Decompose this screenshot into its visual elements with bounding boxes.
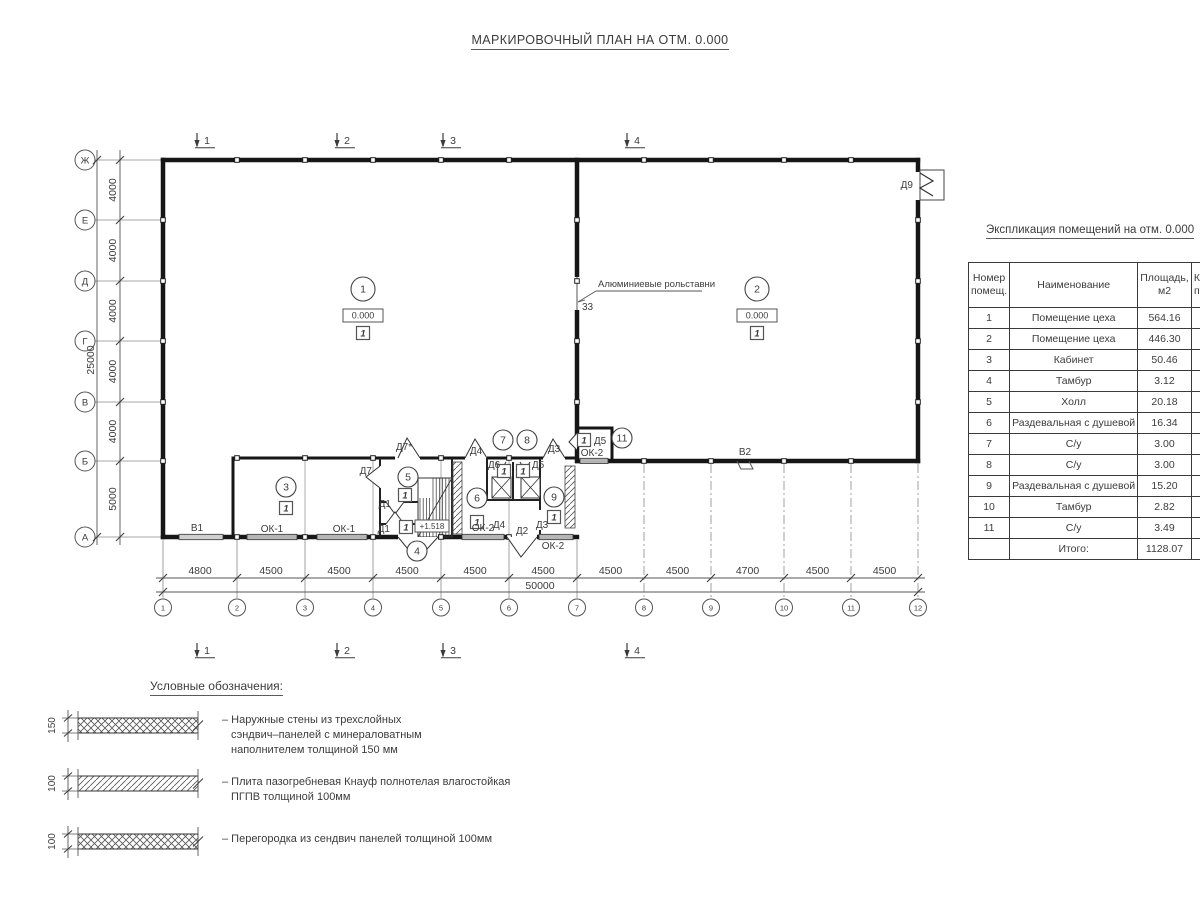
- note-leader: [578, 291, 596, 302]
- dim-text: 4800: [188, 565, 212, 577]
- axis-grid: 123456789101112ЖЕДГВБА: [75, 150, 927, 616]
- cell-num: 3: [969, 350, 1010, 371]
- stair-level-mark: +1.518: [415, 520, 449, 532]
- column-mark: [575, 400, 580, 405]
- room-marker: 11: [612, 428, 632, 448]
- category-text: 1: [402, 490, 407, 501]
- cell-name: Помещение цеха: [1010, 308, 1138, 329]
- section-mark: 1: [194, 643, 215, 658]
- section-mark: 1: [194, 133, 215, 148]
- cell-cat: [1191, 518, 1200, 539]
- cell-area: 16.34: [1138, 413, 1192, 434]
- dim-text: 4700: [736, 565, 760, 577]
- section-arrow-icon: [440, 650, 445, 658]
- legend-item-text: ПГПВ толщиной 100мм: [231, 790, 510, 805]
- cell-area: 3.00: [1138, 455, 1192, 476]
- axis-bubble: 10: [776, 599, 793, 616]
- column-mark: [575, 339, 580, 344]
- window-fill: [462, 534, 504, 539]
- room-marker: 4: [407, 541, 427, 561]
- dim-text: 4500: [873, 565, 897, 577]
- hatched-partition: [565, 466, 575, 528]
- axis-bubble-label: 1: [161, 604, 165, 613]
- category-text: 1: [501, 466, 506, 477]
- door-label: Д1: [378, 524, 391, 535]
- room-schedule: Номерпомещ. Наименование Площадь,м2 Капо…: [968, 262, 1200, 560]
- column-mark: [575, 279, 580, 284]
- legend-bar: [78, 776, 198, 791]
- axis-bubble: 5: [433, 599, 450, 616]
- total-empty-cell: [969, 539, 1010, 560]
- cell-name: Раздевальная с душевой: [1010, 413, 1138, 434]
- legend-item-graphic: 100: [47, 826, 203, 858]
- legend-item-text: – Наружные стены из трехслойных: [222, 713, 422, 728]
- cell-area: 446.30: [1138, 329, 1192, 350]
- door-swing: [569, 433, 577, 450]
- level-text: 0.000: [352, 311, 375, 321]
- room-marker: 7: [493, 430, 513, 450]
- note-number: 33: [582, 302, 594, 313]
- dim-text: 4500: [666, 565, 690, 577]
- section-mark-number: 3: [450, 135, 456, 147]
- level-mark: 0.000: [737, 309, 777, 322]
- room-marker: 5: [398, 467, 418, 487]
- cell-num: 9: [969, 476, 1010, 497]
- section-mark-number: 2: [344, 645, 350, 657]
- total-label: Итого:: [1010, 539, 1138, 560]
- table-row: 3Кабинет50.46: [969, 350, 1200, 371]
- table-row: 2Помещение цеха446.30: [969, 329, 1200, 350]
- legend-item-text: – Перегородка из сендвич панелей толщино…: [222, 832, 492, 847]
- axis-bubble-label: 7: [575, 604, 579, 613]
- cell-cat: [1191, 308, 1200, 329]
- window-label: ОК-2: [542, 541, 565, 552]
- column-mark: [161, 339, 166, 344]
- shower-box: [492, 477, 511, 498]
- section-arrow-icon: [334, 140, 339, 148]
- note-text: Алюминиевые рольставни: [598, 279, 715, 290]
- column-mark: [161, 459, 166, 464]
- room-marker: 1: [351, 277, 375, 301]
- window-label: В1: [191, 523, 204, 534]
- room-marker: 8: [517, 430, 537, 450]
- cell-cat: [1191, 476, 1200, 497]
- cell-area: 15.20: [1138, 476, 1192, 497]
- cell-cat: [1191, 434, 1200, 455]
- window-fill: [580, 458, 608, 463]
- legend-item-graphic: 150: [47, 710, 203, 742]
- section-mark: 2: [334, 133, 355, 148]
- column-mark: [235, 158, 240, 163]
- table-row: 8С/у3.00: [969, 455, 1200, 476]
- legend-item-text: сэндвич–панелей с минераловатным: [231, 728, 422, 743]
- window-fill: [247, 534, 297, 539]
- legend-graphics: 150100100: [47, 710, 203, 858]
- legend-dim-text: 100: [47, 833, 58, 850]
- axis-bubble: Ж: [75, 150, 95, 170]
- column-mark: [709, 158, 714, 163]
- table-row: 10Тамбур2.82: [969, 497, 1200, 518]
- cell-num: 4: [969, 371, 1010, 392]
- window-label: ОК-2: [472, 523, 495, 534]
- category-text: 1: [403, 522, 408, 533]
- table-row: 6Раздевальная с душевой16.34: [969, 413, 1200, 434]
- category-mark: 1: [280, 502, 293, 515]
- category-mark: 1: [548, 511, 561, 524]
- column-mark: [782, 158, 787, 163]
- door-swing: [507, 537, 537, 557]
- cell-num: 10: [969, 497, 1010, 518]
- door-label: Д5: [532, 460, 545, 471]
- room-marker: 6: [467, 488, 487, 508]
- column-mark: [642, 158, 647, 163]
- column-mark: [235, 456, 240, 461]
- room-number: 7: [500, 435, 506, 447]
- column-mark: [161, 218, 166, 223]
- axis-bubble-label: Б: [82, 457, 88, 468]
- column-mark: [161, 400, 166, 405]
- section-arrow-icon: [624, 140, 629, 148]
- column-mark: [916, 339, 921, 344]
- cell-area: 3.49: [1138, 518, 1192, 539]
- legend-bar: [78, 718, 198, 733]
- legend-dim-text: 150: [47, 717, 58, 734]
- legend-dim-text: 100: [47, 775, 58, 792]
- room-number: 8: [524, 435, 530, 447]
- col-header-number: Номерпомещ.: [969, 263, 1010, 308]
- room-schedule-table: Номерпомещ. Наименование Площадь,м2 Капо…: [968, 262, 1200, 560]
- dim-text: 4500: [259, 565, 283, 577]
- section-arrow-icon: [194, 650, 199, 658]
- axis-bubble-label: 4: [371, 604, 375, 613]
- axis-bubble: 1: [155, 599, 172, 616]
- dim-text: 4500: [531, 565, 555, 577]
- section-mark: 4: [624, 643, 645, 658]
- axis-bubble-label: Д: [82, 277, 89, 288]
- category-text: 1: [754, 328, 759, 339]
- cell-name: С/у: [1010, 455, 1138, 476]
- axis-bubble: Б: [75, 451, 95, 471]
- level-mark: 0.000: [343, 309, 383, 322]
- total-value: 1128.07: [1138, 539, 1192, 560]
- axis-bubble: 2: [229, 599, 246, 616]
- axis-bubble-label: Ж: [81, 156, 90, 167]
- column-mark: [849, 459, 854, 464]
- column-mark: [916, 218, 921, 223]
- room-marker: 3: [276, 477, 296, 497]
- column-mark: [439, 456, 444, 461]
- door-label: Д9: [901, 180, 914, 191]
- door-label: Д6: [488, 460, 501, 471]
- column-mark: [439, 535, 444, 540]
- column-mark: [575, 218, 580, 223]
- walls: [161, 158, 921, 540]
- cell-num: 6: [969, 413, 1010, 434]
- cell-num: 1: [969, 308, 1010, 329]
- cell-area: 50.46: [1138, 350, 1192, 371]
- legend-item-text: наполнителем толщиной 150 мм: [231, 743, 422, 758]
- section-arrow-icon: [194, 140, 199, 148]
- section-mark-number: 1: [204, 645, 210, 657]
- axis-bubble: А: [75, 527, 95, 547]
- column-mark: [235, 535, 240, 540]
- axis-bubble: 12: [910, 599, 927, 616]
- axis-bubble: Е: [75, 210, 95, 230]
- col-header-category: Капо: [1191, 263, 1200, 308]
- stair-level-text: +1.518: [420, 522, 445, 531]
- category-text: 1: [551, 512, 556, 523]
- column-mark: [916, 400, 921, 405]
- category-text: 1: [360, 328, 365, 339]
- legend-item: – Плита пазогребневая Кнауф полнотелая в…: [222, 775, 510, 805]
- cell-cat: [1191, 392, 1200, 413]
- cell-cat: [1191, 455, 1200, 476]
- axis-bubble-label: 2: [235, 604, 239, 613]
- section-mark: 2: [334, 643, 355, 658]
- section-mark-number: 2: [344, 135, 350, 147]
- table-row: 7С/у3.00: [969, 434, 1200, 455]
- column-mark: [371, 456, 376, 461]
- column-mark: [303, 535, 308, 540]
- room-marker: 9: [544, 487, 564, 507]
- total-empty-cell: [1191, 539, 1200, 560]
- column-mark: [161, 279, 166, 284]
- column-mark: [849, 158, 854, 163]
- axis-bubble-label: 3: [303, 604, 307, 613]
- axis-bubble: 6: [501, 599, 518, 616]
- axis-bubble-label: 6: [507, 604, 511, 613]
- dim-text: 5000: [107, 487, 119, 511]
- cell-name: Тамбур: [1010, 371, 1138, 392]
- room-number: 4: [414, 546, 420, 558]
- column-mark: [642, 459, 647, 464]
- cell-num: 8: [969, 455, 1010, 476]
- section-mark-number: 1: [204, 135, 210, 147]
- section-arrow-icon: [440, 140, 445, 148]
- cell-name: Помещение цеха: [1010, 329, 1138, 350]
- cell-name: С/у: [1010, 434, 1138, 455]
- column-mark: [371, 535, 376, 540]
- legend-item: – Наружные стены из трехслойныхсэндвич–п…: [222, 713, 422, 758]
- room-number: 5: [405, 472, 411, 484]
- cell-cat: [1191, 413, 1200, 434]
- cell-num: 7: [969, 434, 1010, 455]
- cell-name: Тамбур: [1010, 497, 1138, 518]
- dim-text: 4500: [327, 565, 351, 577]
- dim-text: 4000: [107, 360, 119, 384]
- cell-num: 11: [969, 518, 1010, 539]
- axis-bubble: 8: [636, 599, 653, 616]
- column-mark: [709, 459, 714, 464]
- category-mark: 1: [357, 327, 370, 340]
- section-mark-number: 4: [634, 135, 640, 147]
- column-mark: [916, 279, 921, 284]
- door-label: Д7: [360, 466, 373, 477]
- table-row: 4Тамбур3.12: [969, 371, 1200, 392]
- col-header-area: Площадь,м2: [1138, 263, 1192, 308]
- category-text: 1: [520, 466, 525, 477]
- axis-bubble: 9: [703, 599, 720, 616]
- shower-box: [521, 477, 540, 498]
- legend-item-text: – Плита пазогребневая Кнауф полнотелая в…: [222, 775, 510, 790]
- cell-area: 564.16: [1138, 308, 1192, 329]
- door-label: Д2: [516, 526, 529, 537]
- gate-fill: [179, 534, 223, 539]
- cell-name: С/у: [1010, 518, 1138, 539]
- legend-bar: [78, 834, 198, 849]
- door-label: Д4: [493, 520, 506, 531]
- room-schedule-title-text: Экспликация помещений на отм. 0.000: [986, 224, 1194, 239]
- cell-cat: [1191, 350, 1200, 371]
- dim-text: 4000: [107, 299, 119, 323]
- axis-bubble-label: 11: [847, 604, 855, 613]
- dim-text: 4000: [107, 178, 119, 202]
- note-rolling-shutters: Алюминиевые рольставни33: [578, 279, 715, 313]
- cell-area: 3.00: [1138, 434, 1192, 455]
- level-text: 0.000: [746, 311, 769, 321]
- cell-num: 5: [969, 392, 1010, 413]
- axis-bubble-label: 5: [439, 604, 443, 613]
- room-number: 9: [551, 492, 557, 504]
- room-marker: 2: [745, 277, 769, 301]
- window-label: В2: [739, 447, 752, 458]
- section-mark: 4: [624, 133, 645, 148]
- axis-bubble: В: [75, 392, 95, 412]
- room-number: 1: [360, 284, 366, 296]
- cell-area: 3.12: [1138, 371, 1192, 392]
- category-mark: 1: [578, 434, 591, 447]
- axis-bubble: 11: [843, 599, 860, 616]
- category-mark: 1: [399, 489, 412, 502]
- axis-bubble-label: Е: [82, 216, 88, 227]
- legend-item-graphic: 100: [47, 768, 203, 800]
- axis-bubble-label: В: [82, 398, 88, 409]
- hatched-partition: [453, 462, 462, 534]
- category-mark: 1: [517, 465, 530, 478]
- table-total-row: Итого: 1128.07: [969, 539, 1200, 560]
- table-row: 11С/у3.49: [969, 518, 1200, 539]
- dim-total-text: 50000: [525, 580, 554, 592]
- cell-num: 2: [969, 329, 1010, 350]
- category-text: 1: [283, 503, 288, 514]
- dim-text: 4000: [107, 420, 119, 444]
- dim-text: 4500: [463, 565, 487, 577]
- dim-text: 4500: [395, 565, 419, 577]
- dim-total-text: 25000: [85, 345, 97, 374]
- cell-name: Холл: [1010, 392, 1138, 413]
- axis-bubble: 3: [297, 599, 314, 616]
- column-mark: [303, 158, 308, 163]
- category-mark: 1: [751, 327, 764, 340]
- cell-name: Раздевальная с душевой: [1010, 476, 1138, 497]
- axis-bubble-label: А: [82, 533, 89, 544]
- section-mark-number: 4: [634, 645, 640, 657]
- door-label: Д4: [470, 446, 483, 457]
- column-mark: [507, 456, 512, 461]
- door-label: Д1: [379, 499, 392, 510]
- legend-title: Условные обозначения:: [150, 679, 283, 693]
- column-mark: [371, 158, 376, 163]
- window-fill: [539, 534, 573, 539]
- table-row: 1Помещение цеха564.16: [969, 308, 1200, 329]
- column-mark: [782, 459, 787, 464]
- axis-bubble: 7: [569, 599, 586, 616]
- section-arrow-icon: [334, 650, 339, 658]
- cell-area: 2.82: [1138, 497, 1192, 518]
- cell-name: Кабинет: [1010, 350, 1138, 371]
- room-number: 2: [754, 284, 760, 296]
- column-mark: [507, 158, 512, 163]
- dim-text: 4000: [107, 239, 119, 263]
- window-label: ОК-1: [261, 524, 284, 535]
- door-label: Д3: [548, 444, 561, 455]
- column-mark: [439, 158, 444, 163]
- room-number: 6: [474, 493, 480, 505]
- section-mark: 3: [440, 133, 461, 148]
- section-mark: 3: [440, 643, 461, 658]
- cell-cat: [1191, 371, 1200, 392]
- door-label: Д5: [594, 436, 607, 447]
- room-schedule-title: Экспликация помещений на отм. 0.000: [986, 224, 1194, 236]
- axis-bubble-label: 8: [642, 604, 646, 613]
- legend-item: – Перегородка из сендвич панелей толщино…: [222, 832, 492, 847]
- axis-bubble-label: 10: [780, 604, 788, 613]
- section-arrow-icon: [624, 650, 629, 658]
- cell-area: 20.18: [1138, 392, 1192, 413]
- col-header-name: Наименование: [1010, 263, 1138, 308]
- door-label: Д7*: [396, 442, 412, 453]
- axis-bubble: Д: [75, 271, 95, 291]
- table-row: 9Раздевальная с душевой15.20: [969, 476, 1200, 497]
- window-label: ОК-2: [581, 448, 604, 459]
- category-mark: 1: [400, 521, 413, 534]
- axis-bubble-label: 9: [709, 604, 713, 613]
- category-text: 1: [581, 435, 586, 446]
- door-label: Д3: [536, 520, 549, 531]
- table-header-row: Номерпомещ. Наименование Площадь,м2 Капо: [969, 263, 1200, 308]
- dim-text: 4500: [806, 565, 830, 577]
- section-mark-number: 3: [450, 645, 456, 657]
- legend-title-text: Условные обозначения:: [150, 679, 283, 696]
- room-number: 11: [617, 433, 628, 445]
- column-mark: [303, 456, 308, 461]
- cell-cat: [1191, 329, 1200, 350]
- cell-cat: [1191, 497, 1200, 518]
- axis-bubble-label: 12: [914, 604, 922, 613]
- axis-bubble: 4: [365, 599, 382, 616]
- dim-text: 4500: [599, 565, 623, 577]
- window-fill: [317, 534, 367, 539]
- room-number: 3: [283, 482, 289, 494]
- window-label: ОК-1: [333, 524, 356, 535]
- table-row: 5Холл20.18: [969, 392, 1200, 413]
